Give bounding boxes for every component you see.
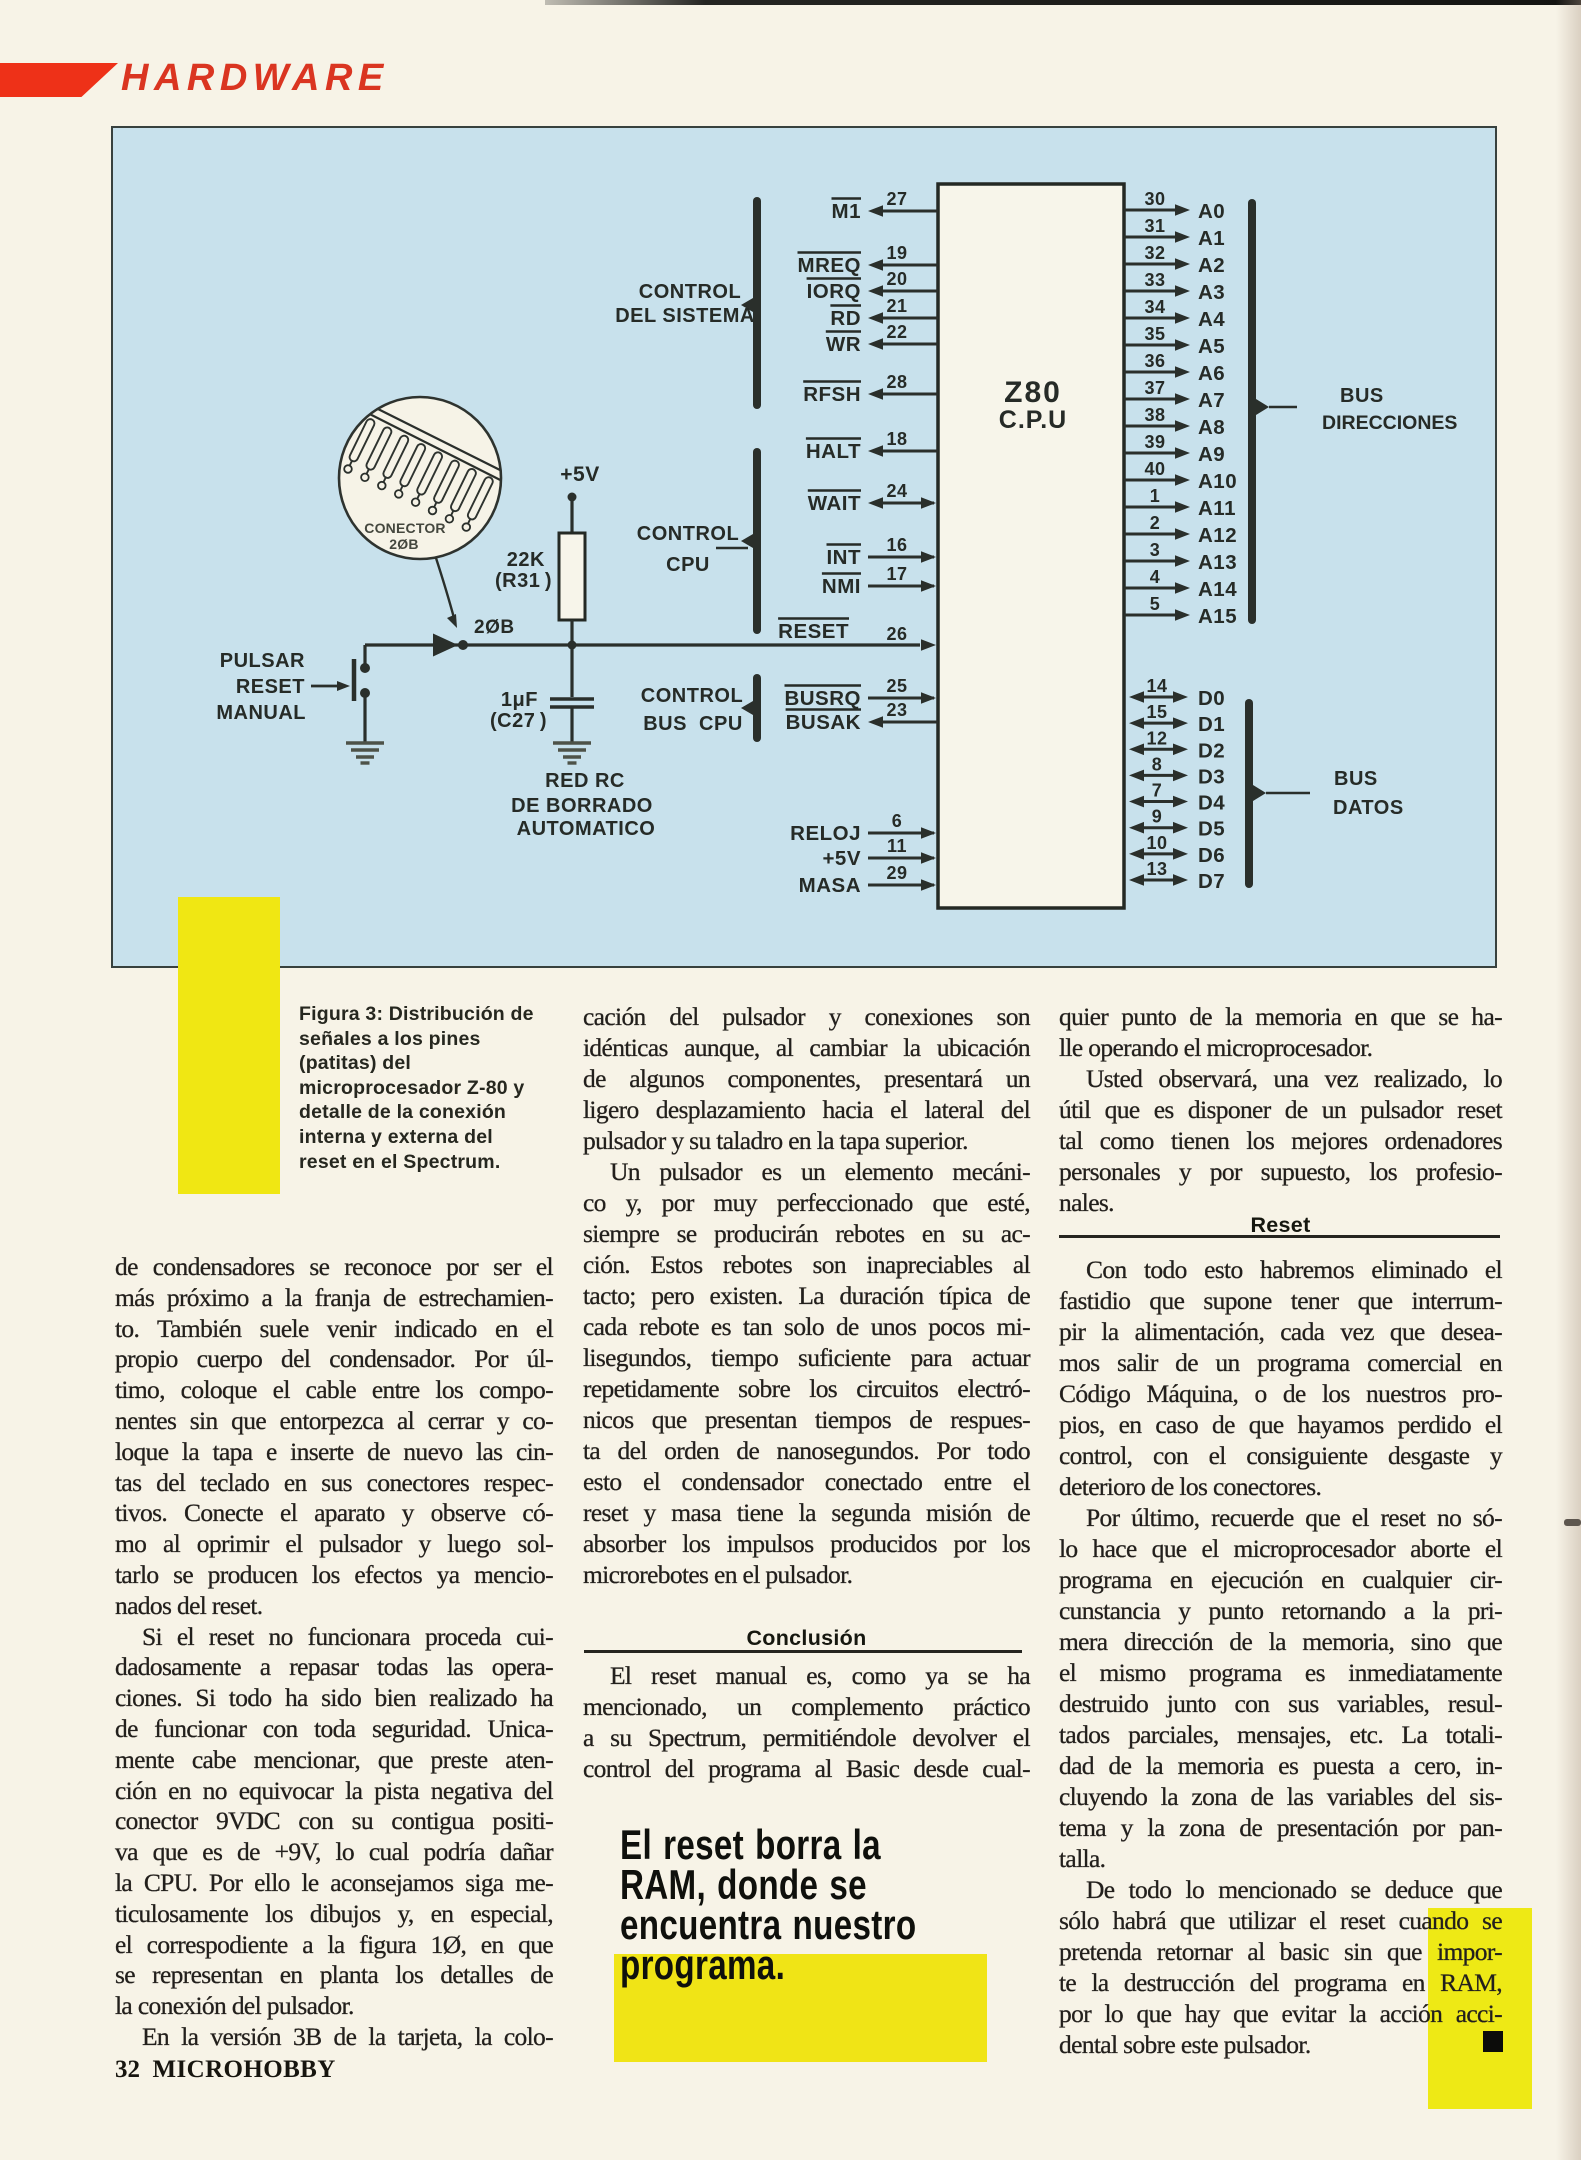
svg-text:RESET: RESET (778, 620, 849, 643)
svg-text:RFSH: RFSH (803, 383, 861, 406)
svg-text:MASA: MASA (799, 874, 861, 897)
svg-text:23: 23 (886, 700, 907, 720)
svg-text:D3: D3 (1198, 765, 1225, 788)
svg-text:36: 36 (1144, 351, 1165, 371)
svg-text:22: 22 (886, 322, 907, 342)
svg-text:2ØB: 2ØB (474, 617, 515, 638)
svg-text:DIRECCIONES: DIRECCIONES (1322, 412, 1457, 434)
svg-text:CONTROL: CONTROL (637, 523, 739, 545)
svg-text:D2: D2 (1198, 739, 1225, 762)
svg-text:D6: D6 (1198, 844, 1225, 867)
svg-text:PULSAR: PULSAR (220, 650, 305, 672)
svg-text:A12: A12 (1198, 524, 1237, 547)
svg-text:RESET: RESET (236, 676, 305, 698)
svg-text:A0: A0 (1198, 200, 1225, 223)
svg-text:14: 14 (1146, 676, 1167, 696)
svg-text:CONECTOR: CONECTOR (364, 520, 445, 536)
svg-text:30: 30 (1144, 189, 1165, 209)
svg-text:9: 9 (1152, 807, 1163, 827)
svg-text:2ØB: 2ØB (389, 536, 418, 552)
svg-text:38: 38 (1144, 405, 1165, 425)
svg-text:26: 26 (886, 624, 907, 644)
svg-text:(R31 ): (R31 ) (495, 570, 552, 592)
svg-text:WAIT: WAIT (808, 492, 861, 515)
svg-text:A7: A7 (1198, 389, 1225, 412)
svg-text:35: 35 (1144, 324, 1165, 344)
svg-text:11: 11 (887, 836, 907, 856)
svg-text:25: 25 (886, 676, 907, 696)
svg-text:13: 13 (1146, 859, 1167, 879)
svg-text:CPU: CPU (666, 554, 710, 576)
svg-text:18: 18 (886, 429, 907, 449)
svg-text:CONTROL: CONTROL (641, 685, 743, 707)
svg-text:WR: WR (826, 333, 861, 356)
svg-text:NMI: NMI (822, 575, 861, 598)
svg-text:CONTROL: CONTROL (639, 281, 741, 303)
svg-text:A2: A2 (1198, 254, 1225, 277)
svg-text:39: 39 (1144, 432, 1165, 452)
svg-text:12: 12 (1146, 728, 1167, 748)
svg-text:A5: A5 (1198, 335, 1225, 358)
svg-text:(C27 ): (C27 ) (490, 710, 547, 732)
svg-text:4: 4 (1150, 567, 1161, 587)
svg-text:BUS: BUS (1334, 768, 1378, 790)
svg-text:37: 37 (1144, 378, 1165, 398)
svg-text:BUS: BUS (1340, 385, 1384, 407)
svg-text:10: 10 (1146, 833, 1167, 853)
svg-text:A1: A1 (1198, 227, 1225, 250)
svg-text:MANUAL: MANUAL (216, 702, 306, 724)
svg-text:A10: A10 (1198, 470, 1237, 493)
svg-text:DATOS: DATOS (1333, 797, 1404, 819)
svg-text:15: 15 (1146, 702, 1167, 722)
svg-text:BUSAK: BUSAK (786, 711, 861, 734)
svg-text:DEL SISTEMA: DEL SISTEMA (615, 305, 755, 327)
svg-text:7: 7 (1152, 781, 1163, 801)
svg-text:22K: 22K (507, 549, 545, 571)
svg-text:BUSRQ: BUSRQ (784, 687, 861, 710)
svg-text:A14: A14 (1198, 578, 1237, 601)
svg-text:HALT: HALT (806, 440, 861, 463)
svg-text:29: 29 (886, 863, 907, 883)
svg-text:19: 19 (886, 243, 907, 263)
svg-text:32: 32 (1144, 243, 1165, 263)
svg-text:A11: A11 (1198, 497, 1236, 520)
svg-text:27: 27 (886, 189, 907, 209)
svg-text:D7: D7 (1198, 870, 1225, 893)
svg-text:DE BORRADO: DE BORRADO (511, 795, 653, 817)
svg-text:28: 28 (886, 372, 907, 392)
svg-text:RED RC: RED RC (545, 770, 625, 792)
svg-text:16: 16 (886, 535, 907, 555)
svg-text:5: 5 (1150, 594, 1161, 614)
svg-text:3: 3 (1150, 540, 1161, 560)
svg-text:17: 17 (886, 564, 907, 584)
svg-text:IORQ: IORQ (807, 280, 861, 303)
svg-text:D1: D1 (1198, 713, 1225, 736)
svg-text:+5V: +5V (822, 847, 861, 870)
svg-text:1μF: 1μF (501, 689, 538, 711)
svg-text:A4: A4 (1198, 308, 1225, 331)
svg-text:A15: A15 (1198, 605, 1237, 628)
svg-text:A13: A13 (1198, 551, 1237, 574)
svg-text:A8: A8 (1198, 416, 1225, 439)
svg-text:A6: A6 (1198, 362, 1225, 385)
svg-text:A3: A3 (1198, 281, 1225, 304)
svg-text:D4: D4 (1198, 792, 1225, 815)
svg-text:34: 34 (1144, 297, 1165, 317)
svg-text:21: 21 (886, 296, 907, 316)
svg-text:BUS CPU: BUS CPU (643, 713, 743, 735)
svg-text:C.P.U: C.P.U (999, 406, 1067, 434)
svg-text:24: 24 (886, 481, 907, 501)
svg-text:A9: A9 (1198, 443, 1225, 466)
svg-text:Z80: Z80 (1004, 376, 1062, 409)
svg-text:31: 31 (1144, 216, 1165, 236)
svg-text:D5: D5 (1198, 818, 1225, 841)
svg-text:6: 6 (892, 811, 903, 831)
svg-text:1: 1 (1150, 486, 1161, 506)
svg-text:M1: M1 (832, 200, 861, 223)
svg-text:AUTOMATICO: AUTOMATICO (517, 818, 656, 840)
svg-text:+5V: +5V (560, 463, 599, 486)
svg-text:8: 8 (1152, 754, 1163, 774)
svg-text:D0: D0 (1198, 687, 1225, 710)
svg-text:MREQ: MREQ (798, 254, 862, 277)
svg-text:20: 20 (886, 269, 907, 289)
svg-text:2: 2 (1150, 513, 1161, 533)
svg-text:RELOJ: RELOJ (790, 822, 861, 845)
svg-text:40: 40 (1144, 459, 1165, 479)
svg-text:33: 33 (1144, 270, 1165, 290)
svg-text:INT: INT (826, 546, 861, 569)
svg-text:RD: RD (830, 307, 861, 330)
